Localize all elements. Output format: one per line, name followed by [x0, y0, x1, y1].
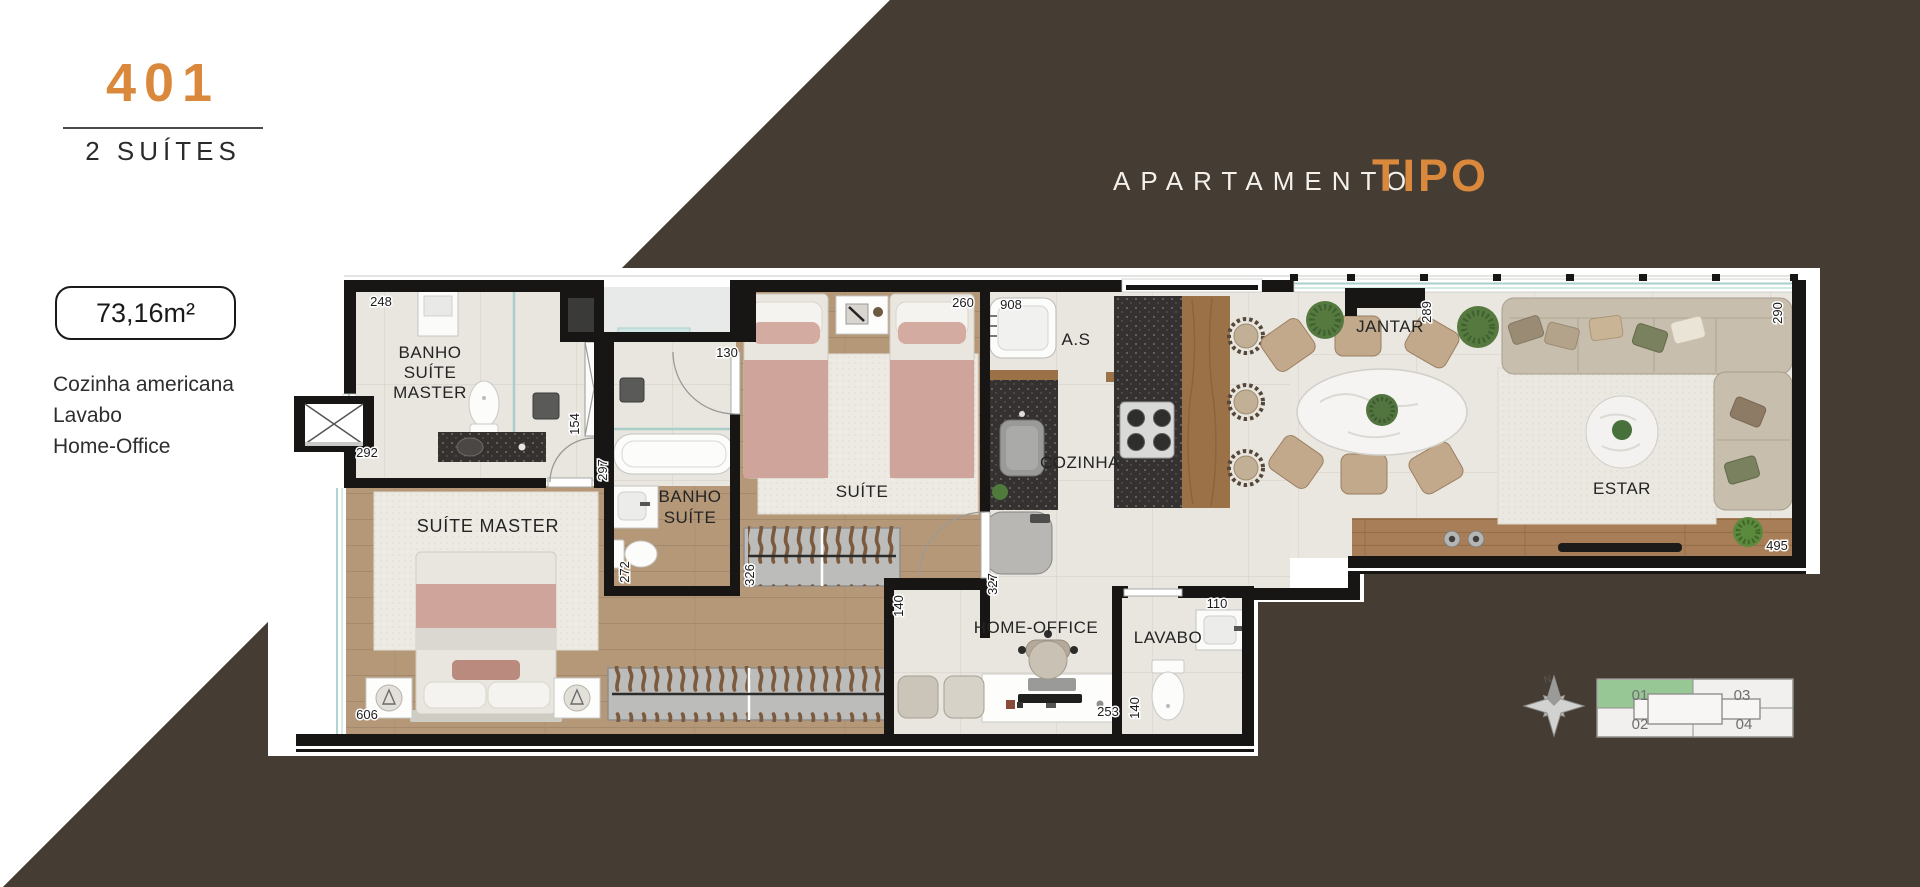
pouf [944, 676, 984, 718]
dim: 495 [1766, 538, 1788, 553]
nightstand-right [554, 678, 600, 718]
single-bed-left [744, 294, 828, 478]
svg-text:SUÍTE: SUÍTE [664, 508, 717, 527]
page: 401 2 SUÍTES 73,16m² Cozinha americana L… [0, 0, 1920, 887]
dim: 140 [1127, 697, 1142, 719]
dim: 297 [595, 459, 610, 481]
shower-drain [533, 393, 559, 419]
shower-drain [620, 378, 644, 402]
counter-plant [992, 484, 1008, 500]
sofa-chaise [1714, 372, 1792, 510]
dim: 253 [1097, 704, 1119, 719]
svg-text:MASTER: MASTER [393, 383, 467, 402]
toilet [469, 381, 499, 427]
dim: 260 [952, 295, 974, 310]
dim: 130 [716, 345, 738, 360]
room-label-as: A.S [1062, 330, 1091, 349]
compass-rose: N [1524, 673, 1584, 736]
dim: 272 [617, 561, 632, 583]
dim: 154 [567, 413, 582, 435]
svg-text:SUÍTE: SUÍTE [404, 363, 457, 382]
keyplan-unit-01: 01 [1632, 687, 1649, 704]
toilet [1152, 672, 1184, 720]
pouf [898, 676, 938, 718]
dim: 292 [356, 445, 378, 460]
double-bed [410, 552, 562, 722]
dim: 290 [1770, 302, 1785, 324]
dim: 289 [1419, 301, 1434, 323]
room-label-banho-suite: BANHO [659, 487, 722, 506]
sliding-door [1124, 589, 1182, 596]
room-label-home-office: HOME-OFFICE [974, 618, 1099, 637]
dim: 606 [356, 707, 378, 722]
suite-nightstand [836, 296, 888, 334]
dim: 140 [891, 595, 906, 617]
dim: 248 [370, 294, 392, 309]
bathtub [614, 434, 734, 474]
room-label-cozinha: COZINHA [1040, 453, 1120, 472]
floor-plan: BANHO SUÍTE MASTER SUÍTE MASTER BANHO SU… [0, 0, 1920, 887]
keyplan-unit-04: 04 [1736, 716, 1753, 733]
dim: 908 [1000, 297, 1022, 312]
keyplan-unit-03: 03 [1734, 687, 1751, 704]
keyplan: 01 03 02 04 [1597, 679, 1793, 737]
room-label-jantar: JANTAR [1356, 317, 1424, 336]
room-label-estar: ESTAR [1593, 479, 1651, 498]
room-label-suite-master: SUÍTE MASTER [417, 516, 560, 536]
dim: 327 [985, 573, 1000, 595]
dim: 110 [1207, 596, 1228, 611]
dim: 326 [742, 564, 757, 586]
room-label-banho-master: BANHO [399, 343, 462, 362]
room-label-suite: SUÍTE [836, 482, 889, 501]
room-label-lavabo: LAVABO [1134, 628, 1203, 647]
deck-fixture [1558, 543, 1682, 552]
compass-north-label: N [1542, 673, 1553, 687]
keyplan-unit-02: 02 [1632, 716, 1649, 733]
single-bed-right [890, 294, 974, 478]
